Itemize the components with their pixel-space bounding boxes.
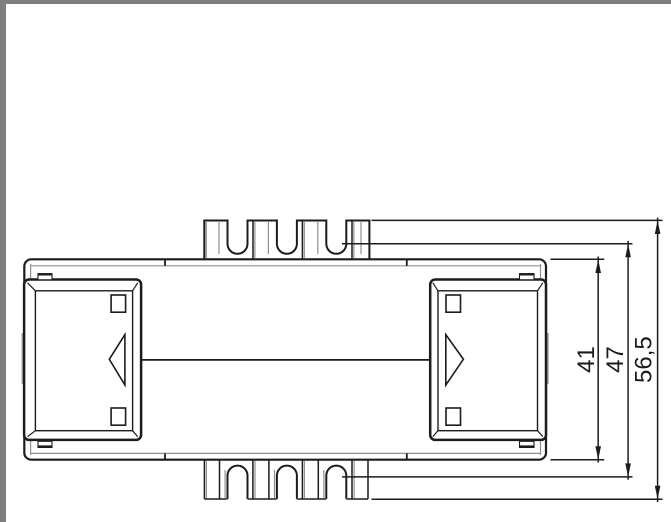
svg-text:41: 41: [573, 346, 600, 373]
svg-text:56,5: 56,5: [631, 336, 658, 383]
svg-text:47: 47: [602, 346, 629, 373]
